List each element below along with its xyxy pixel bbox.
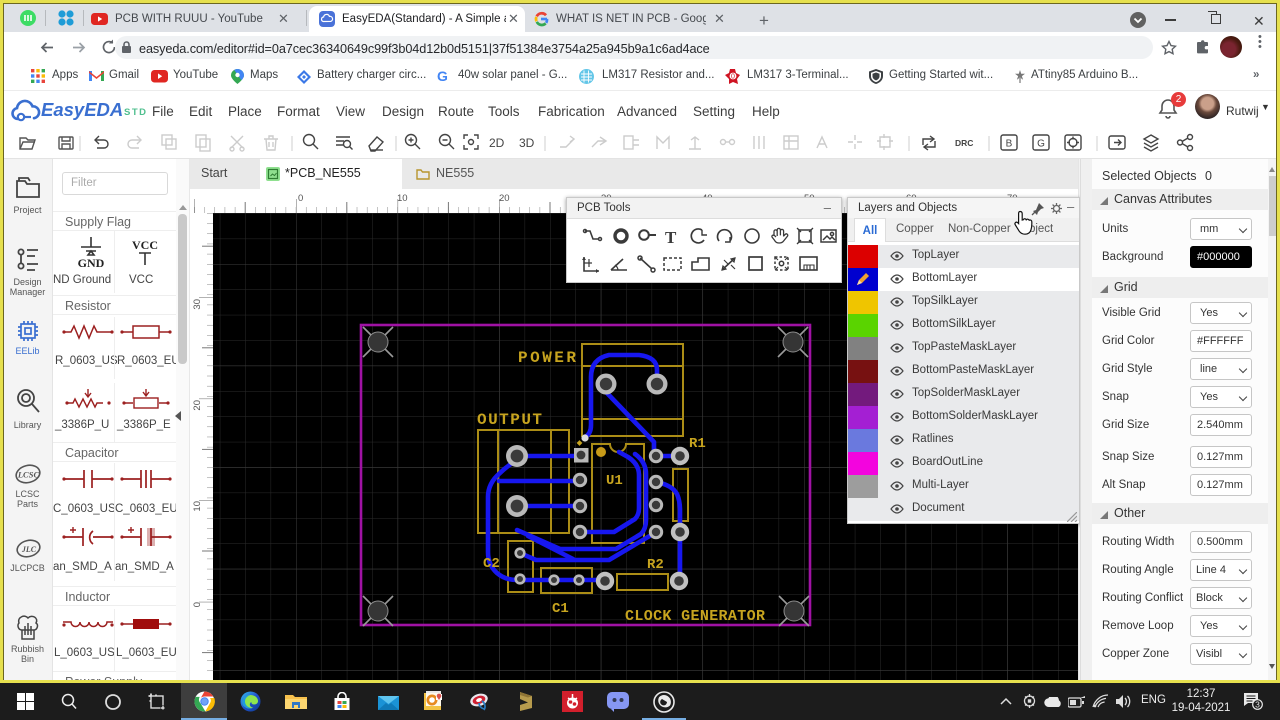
- svg-text:C1: C1: [552, 601, 569, 617]
- svg-text:R2: R2: [647, 557, 664, 573]
- svg-text:R1: R1: [689, 436, 706, 452]
- svg-text:LCSC: LCSC: [17, 470, 40, 480]
- svg-text:VCC: VCC: [132, 238, 158, 252]
- svg-text:0: 0: [731, 74, 735, 81]
- svg-text:30: 30: [192, 299, 203, 310]
- svg-text:C2: C2: [483, 556, 500, 572]
- svg-text:2D: 2D: [489, 136, 505, 150]
- svg-text:20: 20: [192, 400, 203, 411]
- svg-text:10: 10: [397, 193, 408, 204]
- svg-text:G: G: [1037, 139, 1045, 150]
- svg-text:20: 20: [499, 193, 510, 204]
- svg-text:0: 0: [192, 602, 203, 607]
- svg-text:DRC: DRC: [955, 138, 973, 148]
- svg-text:B: B: [1006, 139, 1013, 150]
- svg-text:CLOCK GENERATOR: CLOCK GENERATOR: [625, 608, 765, 625]
- svg-text:3: 3: [1255, 700, 1260, 710]
- svg-text:GND: GND: [78, 256, 105, 270]
- svg-text:10: 10: [192, 501, 203, 512]
- svg-text:POWER: POWER: [518, 349, 576, 367]
- svg-text:T: T: [665, 228, 677, 247]
- svg-text:JLC: JLC: [21, 545, 37, 554]
- svg-text:3D: 3D: [519, 136, 535, 150]
- svg-text:U1: U1: [606, 473, 623, 489]
- svg-text:0: 0: [298, 193, 303, 204]
